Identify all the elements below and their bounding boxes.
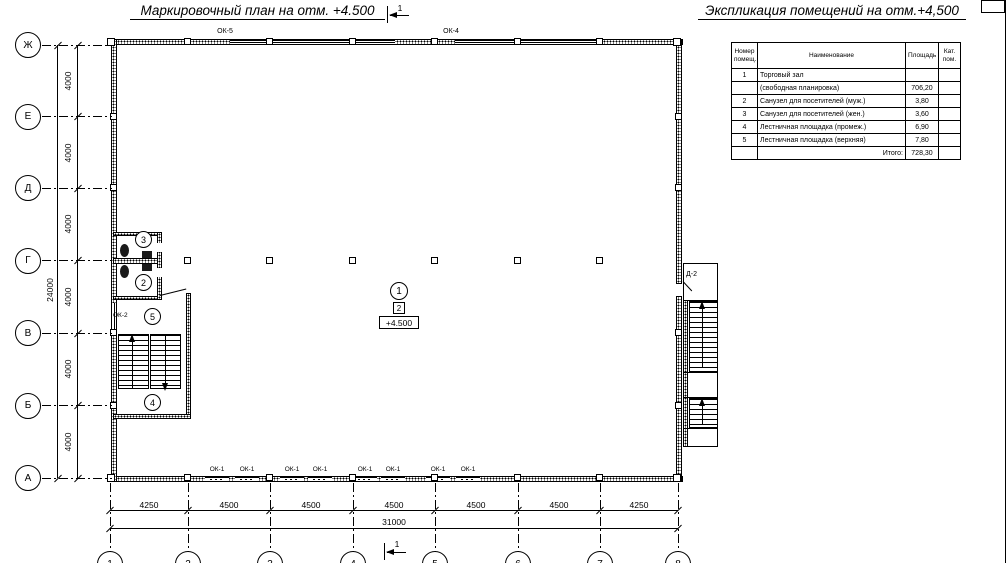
dim-line-left-total [57,45,58,478]
cell-cat [939,82,961,95]
cell-cat [939,108,961,121]
cell-cat [939,95,961,108]
column-marker [675,184,682,191]
grid-bubble-row: Д [15,175,41,201]
door-d2-opening [676,283,682,297]
window-label-ok5: ОК-5 [210,28,240,35]
window-label-ok1: ОК-1 [426,466,450,473]
wall-east [676,39,682,482]
schedule-header-area: Площадь [906,43,939,69]
cell-num [732,82,758,95]
cell-cat [939,147,961,160]
column-marker [431,38,438,45]
room-bubble-stair-mid: 4 [144,394,161,411]
stair-enclosure-wall-right [186,293,191,418]
room-schedule-table: Номер помещ. Наименование Площадь Кат. п… [731,42,961,160]
dim-label: 4000 [63,422,73,462]
table-row: 5 Лестничная площадка (верхняя) 7,80 [732,134,961,147]
room-bubble-wc-w: 3 [135,231,152,248]
cell-num: 5 [732,134,758,147]
window-label-ok1: ОК-1 [205,466,229,473]
grid-line [600,483,601,552]
door-label-d2: Д-2 [686,271,706,278]
section-mark-top-line [387,6,388,23]
window-ok5 [230,40,395,45]
window-label-ok1: ОК-1 [353,466,377,473]
grid-bubble-col: 6 [505,551,531,563]
window-ok4 [455,40,600,45]
window-ok1 [353,477,377,482]
grid-bubble-row: Е [15,104,41,130]
dim-label: 4500 [539,500,579,510]
cell-area: 6,90 [906,121,939,134]
plan-title: Маркировочный план на отм. +4.500 [130,3,385,20]
interior-column-marker [431,257,438,264]
grid-bubble-col: 8 [665,551,691,563]
grid-bubble-col: 7 [587,551,613,563]
corner-pier [673,38,681,46]
grid-line [678,483,679,552]
section-mark-bottom-line [384,543,385,560]
dim-line-bottom-total [110,528,678,529]
dim-label-total-bottom: 31000 [374,517,414,527]
column-marker [514,474,521,481]
table-row: 1 Торговый зал [732,69,961,82]
grid-bubble-col: 5 [422,551,448,563]
cell-area [906,69,939,82]
stair-arrow-shaft [165,336,166,385]
cell-area: 3,60 [906,108,939,121]
toilet-fixture [120,244,129,257]
sheet-frame-line [1005,0,1006,563]
column-marker [596,474,603,481]
grid-line [518,483,519,552]
room-bubble-stair-top: 5 [144,308,161,325]
interior-column-marker [349,257,356,264]
cell-total-value: 728,30 [906,147,939,160]
cell-area: 706,20 [906,82,939,95]
grid-bubble-row: Г [15,248,41,274]
section-mark-bottom-label: 1 [391,539,403,549]
window-label-ok1: ОК-1 [235,466,259,473]
cell-num: 3 [732,108,758,121]
cell-name: Лестничная площадка (промеж.) [758,121,906,134]
schedule-header-cat: Кат. пом. [939,43,961,69]
cell-cat [939,134,961,147]
column-marker [514,38,521,45]
window-label-ok2: ОК-2 [113,312,135,319]
cell-name: (свободная планировка) [758,82,906,95]
exterior-stair-wall [683,300,688,447]
dim-label: 4500 [291,500,331,510]
grid-bubble-row: Б [15,393,41,419]
wc-door-opening [156,243,163,252]
dim-label: 4000 [63,133,73,173]
window-ok1 [426,477,450,482]
section-arrow-bottom-icon [386,549,394,555]
stair-flight-up [118,334,149,389]
exterior-stair-flight [689,301,718,372]
stair-arrow-shaft [702,306,703,368]
cell-num [732,147,758,160]
grid-bubble-row: А [15,465,41,491]
cell-num: 4 [732,121,758,134]
grid-line [435,483,436,552]
grid-bubble-col: 3 [257,551,283,563]
column-marker [184,38,191,45]
door-leaf-line [160,288,186,296]
grid-bubble-row: Ж [15,32,41,58]
window-label-ok1: ОК-1 [308,466,332,473]
dim-label: 4000 [63,204,73,244]
table-total-row: Итого: 728,30 [732,147,961,160]
dim-label-total-left: 24000 [45,270,55,310]
dim-label: 4500 [456,500,496,510]
sheet-frame-zone-box [981,0,1005,13]
column-marker [596,38,603,45]
column-marker [431,474,438,481]
room-bubble-wc-m: 2 [135,274,152,291]
cell-name: Санузел для посетителей (жен.) [758,108,906,121]
window-ok1 [280,477,304,482]
window-ok1 [381,477,405,482]
stair-arrow-shaft [132,339,133,388]
stair-arrow-up-icon [129,334,135,342]
column-marker [266,38,273,45]
column-marker [184,474,191,481]
sink-fixture [142,264,152,271]
cell-num: 1 [732,69,758,82]
plan-square-marker: 2 [393,302,405,314]
cell-name: Торговый зал [758,69,906,82]
cell-cat [939,121,961,134]
wc-block-wall-bottom [113,296,162,300]
elevation-marker: +4.500 [379,316,419,329]
interior-column-marker [514,257,521,264]
table-row: 4 Лестничная площадка (промеж.) 6,90 [732,121,961,134]
grid-line [353,483,354,552]
section-mark-top-label: 1 [394,3,406,13]
stair-enclosure-wall-bottom [113,414,191,419]
drawing-sheet: Маркировочный план на отм. +4.500 Экспли… [0,0,1007,563]
stair-arrow-shaft [702,403,703,425]
dim-label: 4000 [63,349,73,389]
grid-line [188,483,189,552]
column-marker [266,474,273,481]
schedule-header-num: Номер помещ. [732,43,758,69]
grid-bubble-row: В [15,320,41,346]
window-label-ok1: ОК-1 [381,466,405,473]
stair-landing-line [683,428,718,429]
interior-column-marker [596,257,603,264]
column-marker [675,329,682,336]
interior-column-marker [184,257,191,264]
cell-num: 2 [732,95,758,108]
grid-bubble-col: 2 [175,551,201,563]
stair-arrow-up-icon [699,301,705,309]
toilet-fixture [120,265,129,278]
window-label-ok1: ОК-1 [280,466,304,473]
dim-label: 4000 [63,277,73,317]
grid-line [110,483,111,552]
wc-door-opening [156,268,163,277]
grid-line [270,483,271,552]
interior-column-marker [266,257,273,264]
dim-label: 4500 [374,500,414,510]
dim-label: 4000 [63,61,73,101]
cell-name: Санузел для посетителей (муж.) [758,95,906,108]
dim-label: 4250 [129,500,169,510]
dim-label: 4500 [209,500,249,510]
schedule-header-name: Наименование [758,43,906,69]
grid-bubble-col: 1 [97,551,123,563]
column-marker [349,38,356,45]
cell-name: Лестничная площадка (верхняя) [758,134,906,147]
dim-line-bottom-segments [110,510,678,511]
schedule-title: Экспликация помещений на отм.+4,500 [698,3,966,20]
dim-label: 4250 [619,500,659,510]
cell-area: 7,80 [906,134,939,147]
sink-fixture [142,251,152,258]
window-ok1 [456,477,480,482]
wc-block-wall-divider [113,258,162,264]
table-row: 3 Санузел для посетителей (жен.) 3,60 [732,108,961,121]
stair-arrow-down-icon [162,383,168,391]
window-label-ok1: ОК-1 [456,466,480,473]
window-ok1 [235,477,259,482]
window-ok1 [308,477,332,482]
column-marker [675,402,682,409]
window-label-ok4: ОК-4 [436,28,466,35]
table-row: 2 Санузел для посетителей (муж.) 3,80 [732,95,961,108]
grid-bubble-col: 4 [340,551,366,563]
cell-cat [939,69,961,82]
corner-pier [673,474,681,482]
room-bubble-hall: 1 [390,282,408,300]
window-ok1 [205,477,229,482]
stair-arrow-up-icon [699,398,705,406]
table-row: (свободная планировка) 706,20 [732,82,961,95]
cell-area: 3,80 [906,95,939,108]
column-marker [349,474,356,481]
column-marker [675,113,682,120]
cell-total-label: Итого: [758,147,906,160]
stair-landing-line [683,372,718,373]
